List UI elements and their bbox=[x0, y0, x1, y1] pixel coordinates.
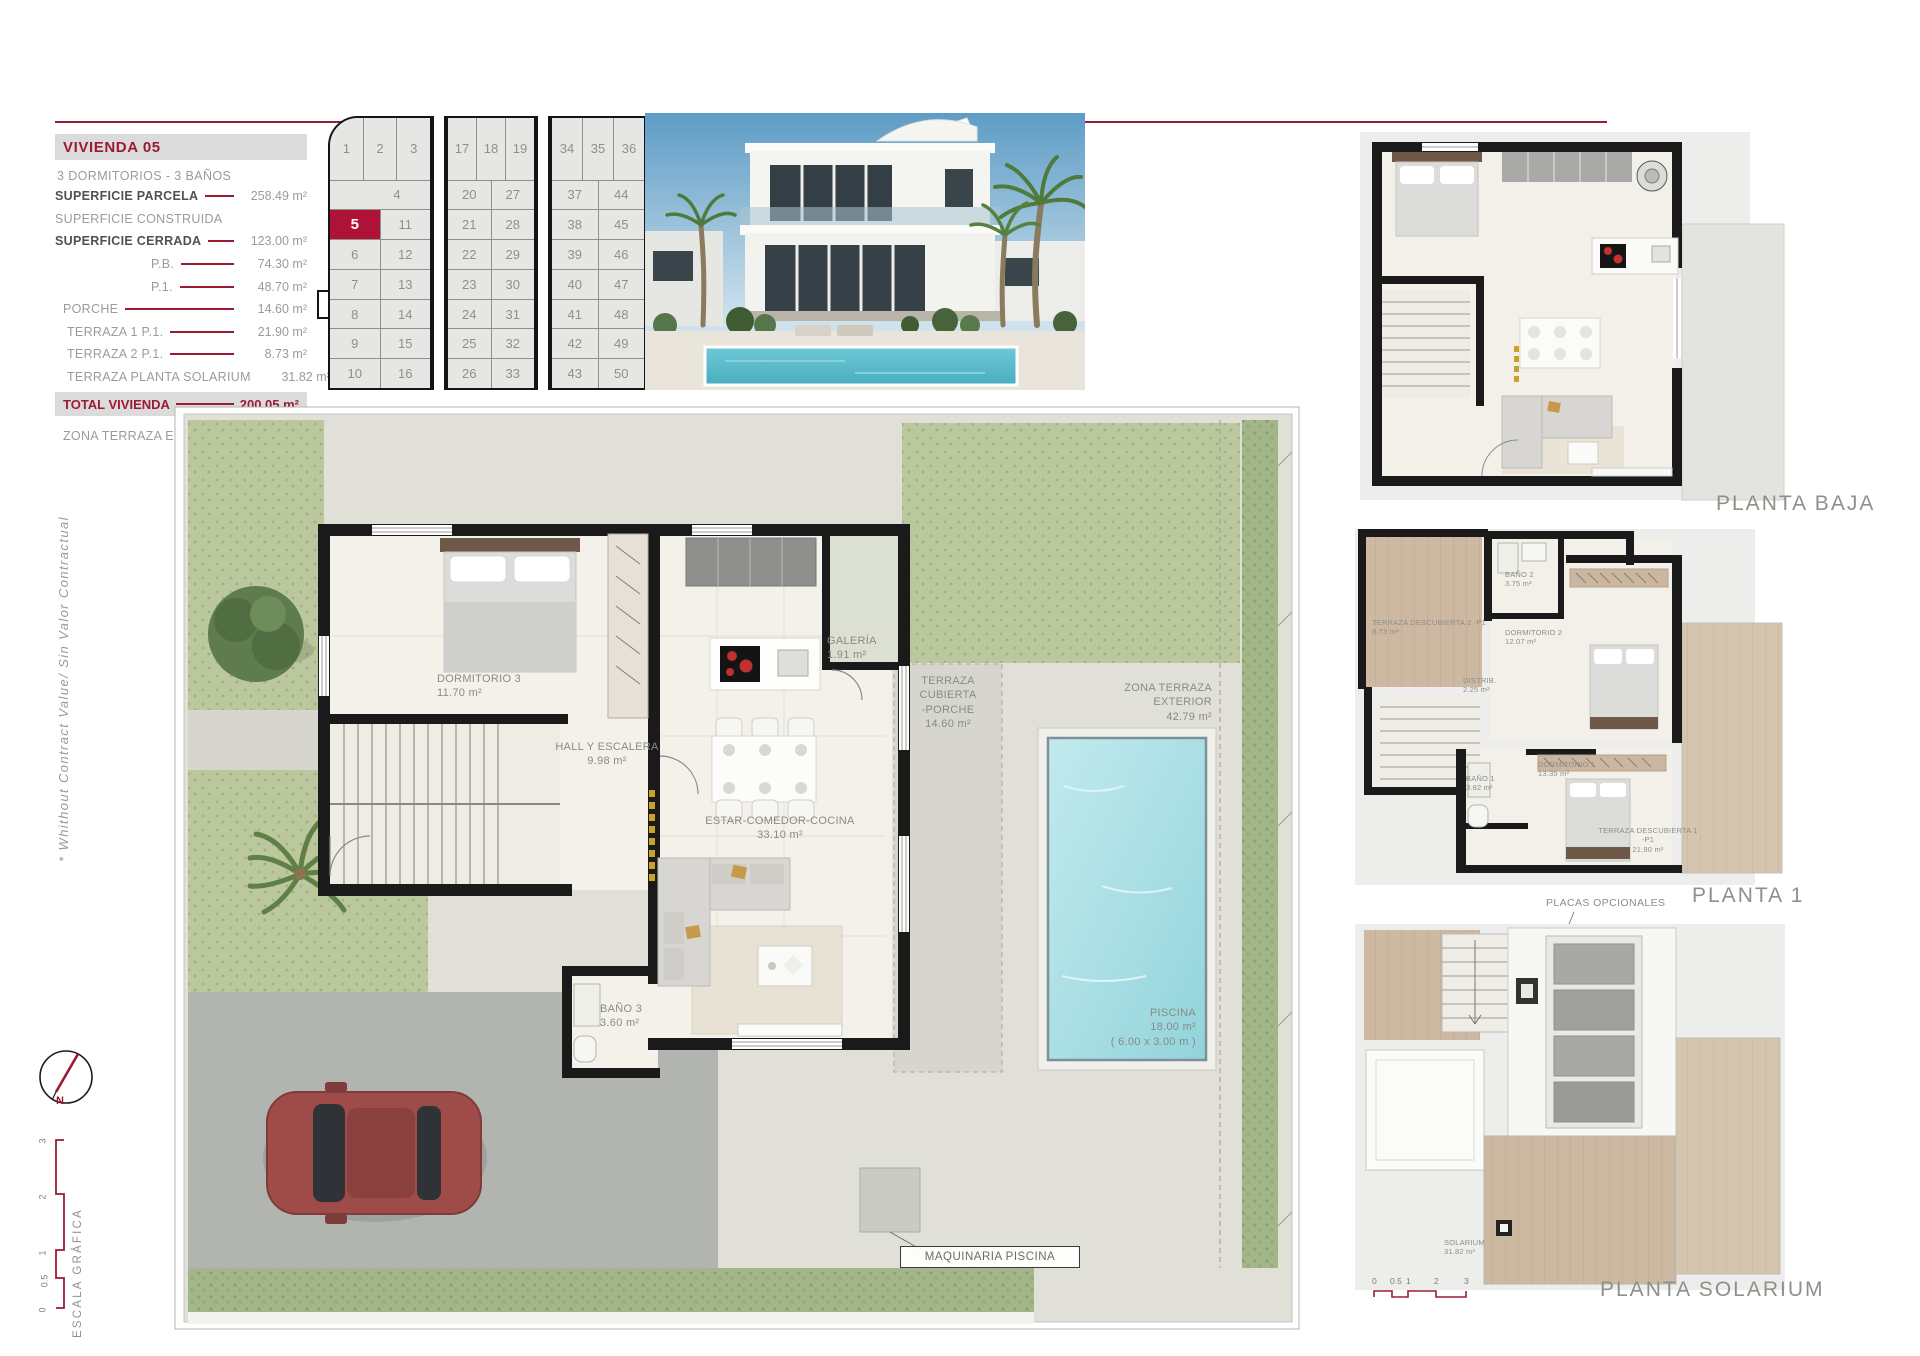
info-row: TERRAZA 2 P.1. 8.73 m² bbox=[55, 343, 307, 366]
plot-cell-32: 32 bbox=[492, 329, 535, 358]
row-value: 123.00 m² bbox=[241, 234, 307, 248]
plot-cell-26: 26 bbox=[448, 359, 492, 388]
p1-label-terraza2: TERRAZA DESCUBIERTA 2 -P1 8.73 m² bbox=[1372, 618, 1490, 637]
disclaimer-note: * Whithout Contract Value/ Sin Valor Con… bbox=[56, 516, 71, 862]
room-label-bano3: BAÑO 3 3.60 m² bbox=[600, 1002, 670, 1031]
leader-line bbox=[181, 263, 234, 265]
site-plan-grid: 1234511612713814915101617181920272128222… bbox=[328, 116, 646, 390]
plot-cell-49: 49 bbox=[599, 329, 645, 358]
plot-row: 2532 bbox=[448, 329, 534, 359]
plot-row: 612 bbox=[330, 240, 430, 270]
plot-cell-30: 30 bbox=[492, 270, 535, 299]
plot-cell-46: 46 bbox=[599, 240, 645, 269]
plot-cell-22: 22 bbox=[448, 240, 492, 269]
wardrobe bbox=[608, 534, 648, 718]
plot-row: 171819 bbox=[448, 118, 534, 181]
sink bbox=[778, 650, 808, 676]
p1-label-dormitorio1: DORMITORIO 1 13.35 m² bbox=[1538, 760, 1618, 779]
plot-cell-18: 18 bbox=[477, 118, 506, 180]
plot-cell-34: 34 bbox=[552, 118, 583, 180]
plot-cell-11: 11 bbox=[381, 210, 431, 239]
plot-cell-40: 40 bbox=[552, 270, 599, 299]
info-row: TERRAZA PLANTA SOLARIUM 31.82 m² bbox=[55, 366, 307, 389]
pool-equipment-pad bbox=[860, 1168, 920, 1232]
room-label-porche: TERRAZA CUBIERTA -PORCHE 14.60 m² bbox=[896, 674, 1000, 731]
escala-grafica-label: ESCALA GRÁFICA bbox=[72, 1208, 84, 1338]
hedge-right bbox=[1242, 420, 1278, 1268]
plot-row: 2027 bbox=[448, 181, 534, 211]
plot-cell-48: 48 bbox=[599, 300, 645, 329]
leader-line bbox=[170, 331, 234, 333]
plot-row: 2431 bbox=[448, 300, 534, 330]
plot-cell-10: 10 bbox=[330, 359, 381, 388]
planta-solarium-plan bbox=[1350, 920, 1800, 1298]
plot-row: 713 bbox=[330, 270, 430, 300]
row-label: P.B. bbox=[151, 257, 174, 271]
photo-pool bbox=[705, 347, 1017, 385]
plot-row: 511 bbox=[330, 210, 430, 240]
compass-north-label: N bbox=[56, 1095, 64, 1107]
side-path bbox=[188, 710, 324, 770]
info-row: PORCHE 14.60 m² bbox=[55, 298, 307, 321]
plot-strip: 1718192027212822292330243125322633 bbox=[446, 116, 536, 390]
washbasin bbox=[574, 984, 600, 1026]
plot-row: 4047 bbox=[552, 270, 644, 300]
row-value: 74.30 m² bbox=[241, 257, 307, 271]
sun-lounger bbox=[795, 325, 831, 336]
planta-baja-title: PLANTA BAJA bbox=[1716, 492, 1875, 516]
planta-1-plan bbox=[1350, 527, 1800, 889]
plot-row: 123 bbox=[330, 118, 430, 181]
plot-cell-19: 19 bbox=[506, 118, 534, 180]
planta-solarium-title: PLANTA SOLARIUM bbox=[1600, 1278, 1825, 1302]
solarium-scale-bar: 0 0.5 1 2 3 bbox=[1372, 1276, 1482, 1300]
plot-cell-3: 3 bbox=[397, 118, 430, 180]
plot-cell-36: 36 bbox=[614, 118, 644, 180]
row-value: 31.82 m² bbox=[265, 370, 331, 384]
plot-row: 2330 bbox=[448, 270, 534, 300]
plot-cell-50: 50 bbox=[599, 359, 645, 388]
plot-cell-28: 28 bbox=[492, 210, 535, 239]
plot-cell-4: 4 bbox=[330, 181, 430, 210]
plot-cell-43: 43 bbox=[552, 359, 599, 388]
plot-row: 3946 bbox=[552, 240, 644, 270]
plot-cell-37: 37 bbox=[552, 181, 599, 210]
total-label: TOTAL VIVIENDA bbox=[63, 397, 170, 412]
plot-cell-44: 44 bbox=[599, 181, 645, 210]
p1-label-distrib: DISTRIB. 2.25 m² bbox=[1463, 676, 1519, 695]
plot-cell-27: 27 bbox=[492, 181, 535, 210]
plot-cell-5: 5 bbox=[330, 210, 381, 239]
plot-row: 814 bbox=[330, 300, 430, 330]
plot-cell-33: 33 bbox=[492, 359, 535, 388]
plot-cell-14: 14 bbox=[381, 300, 431, 329]
row-label: P.1. bbox=[151, 280, 173, 294]
p1-label-terraza1: TERRAZA DESCUBIERTA 1 -P1 21.90 m² bbox=[1596, 826, 1700, 854]
plot-cell-16: 16 bbox=[381, 359, 431, 388]
page-title: VIVIENDA 05 bbox=[55, 134, 307, 160]
row-value: 8.73 m² bbox=[241, 347, 307, 361]
plot-cell-12: 12 bbox=[381, 240, 431, 269]
row-value: 21.90 m² bbox=[241, 325, 307, 339]
info-row: TERRAZA 1 P.1. 21.90 m² bbox=[55, 321, 307, 344]
room-label-piscina: PISCINA 18.00 m² ( 6.00 x 3.00 m ) bbox=[1084, 1006, 1196, 1049]
toilet bbox=[574, 1036, 596, 1062]
info-row: SUPERFICIE CONSTRUIDA bbox=[55, 208, 307, 231]
row-value: 48.70 m² bbox=[241, 280, 307, 294]
room-label-dormitorio3: DORMITORIO 3 11.70 m² bbox=[437, 672, 567, 701]
room-label-hall: HALL Y ESCALERA 9.98 m² bbox=[532, 740, 682, 769]
leader-line bbox=[180, 286, 234, 288]
plot-row: 4350 bbox=[552, 359, 644, 388]
sun-lounger bbox=[837, 325, 873, 336]
room-label-galeria: GALERÍA 1.91 m² bbox=[827, 634, 903, 663]
dwelling-subtitle: 3 DORMITORIOS - 3 BAÑOS bbox=[57, 169, 307, 183]
plot-cell-15: 15 bbox=[381, 329, 431, 358]
info-panel: VIVIENDA 05 3 DORMITORIOS - 3 BAÑOS SUPE… bbox=[55, 134, 307, 447]
p1-label-bano2: BAÑO 2 3.75 m² bbox=[1505, 570, 1565, 589]
plot-row: 2633 bbox=[448, 359, 534, 388]
plot-cell-29: 29 bbox=[492, 240, 535, 269]
plot-row: 4148 bbox=[552, 300, 644, 330]
main-floor-plan: DORMITORIO 3 11.70 m² GALERÍA 1.91 m² HA… bbox=[172, 406, 1302, 1331]
row-value: 14.60 m² bbox=[241, 302, 307, 316]
compass: N bbox=[36, 1044, 98, 1112]
villa-building bbox=[735, 118, 1005, 321]
plot-strip: 3435363744384539464047414842494350 bbox=[550, 116, 646, 390]
row-label: TERRAZA PLANTA SOLARIUM bbox=[67, 370, 251, 384]
plot-row: 3744 bbox=[552, 181, 644, 211]
plot-row: 3845 bbox=[552, 210, 644, 240]
info-row: SUPERFICIE CERRADA 123.00 m² bbox=[55, 230, 307, 253]
info-row: SUPERFICIE PARCELA 258.49 m² bbox=[55, 185, 307, 208]
room-label-zona-terraza: ZONA TERRAZA EXTERIOR 42.79 m² bbox=[1072, 681, 1212, 724]
tv-bench bbox=[738, 1024, 842, 1036]
hedge-bottom bbox=[188, 1268, 1034, 1312]
plot-row: 4 bbox=[330, 181, 430, 211]
leader-line bbox=[125, 308, 234, 310]
plot-cell-38: 38 bbox=[552, 210, 599, 239]
brochure-page: VIVIENDA 05 3 DORMITORIOS - 3 BAÑOS SUPE… bbox=[0, 0, 1920, 1356]
plot-cell-9: 9 bbox=[330, 329, 381, 358]
plot-cell-2: 2 bbox=[364, 118, 398, 180]
plot-cell-20: 20 bbox=[448, 181, 492, 210]
plot-strip: 12345116127138149151016 bbox=[328, 116, 432, 390]
plot-cell-21: 21 bbox=[448, 210, 492, 239]
plot-cell-31: 31 bbox=[492, 300, 535, 329]
plot-cell-6: 6 bbox=[330, 240, 381, 269]
plot-row: 915 bbox=[330, 329, 430, 359]
plot-row: 2229 bbox=[448, 240, 534, 270]
plot-row: 2128 bbox=[448, 210, 534, 240]
row-label: TERRAZA 2 P.1. bbox=[67, 347, 163, 361]
villa-photo bbox=[645, 113, 1085, 390]
kitchen-counter bbox=[686, 538, 816, 586]
dining-set bbox=[712, 718, 816, 820]
plot-cell-13: 13 bbox=[381, 270, 431, 299]
plot-cell-47: 47 bbox=[599, 270, 645, 299]
plot-row: 4249 bbox=[552, 329, 644, 359]
plot-cell-25: 25 bbox=[448, 329, 492, 358]
bed-headboard bbox=[440, 538, 580, 552]
plot-cell-39: 39 bbox=[552, 240, 599, 269]
p1-label-bano1: BAÑO 1 3.82 m² bbox=[1466, 774, 1522, 793]
car bbox=[263, 1082, 487, 1224]
row-label: SUPERFICIE PARCELA bbox=[55, 189, 198, 203]
planta-baja-plan bbox=[1352, 128, 1792, 508]
info-row: P.B. 74.30 m² bbox=[55, 253, 307, 276]
room-label-estar: ESTAR-COMEDOR-COCINA 33.10 m² bbox=[700, 814, 860, 843]
plot-cell-8: 8 bbox=[330, 300, 381, 329]
row-label: PORCHE bbox=[63, 302, 118, 316]
planta-1-title: PLANTA 1 bbox=[1692, 884, 1805, 908]
plot-cell-41: 41 bbox=[552, 300, 599, 329]
info-row: P.1. 48.70 m² bbox=[55, 275, 307, 298]
plot-cell-24: 24 bbox=[448, 300, 492, 329]
street bbox=[536, 116, 550, 390]
plot-cell-17: 17 bbox=[448, 118, 477, 180]
plot-cell-7: 7 bbox=[330, 270, 381, 299]
plot-row: 343536 bbox=[552, 118, 644, 181]
plot-cell-1: 1 bbox=[330, 118, 364, 180]
plot-cell-23: 23 bbox=[448, 270, 492, 299]
plot-cell-42: 42 bbox=[552, 329, 599, 358]
plot-cell-45: 45 bbox=[599, 210, 645, 239]
leader-line bbox=[208, 240, 234, 242]
garden-upper-right bbox=[902, 423, 1240, 663]
street bbox=[432, 116, 446, 390]
row-label: SUPERFICIE CERRADA bbox=[55, 234, 201, 248]
scale-bar-vertical bbox=[52, 1138, 72, 1323]
maquinaria-label: MAQUINARIA PISCINA bbox=[900, 1246, 1080, 1268]
leader-line bbox=[205, 195, 234, 197]
plot-cell-35: 35 bbox=[583, 118, 614, 180]
p1-label-dormitorio2: DORMITORIO 2 12.07 m² bbox=[1505, 628, 1585, 647]
row-value: 258.49 m² bbox=[241, 189, 307, 203]
row-label: SUPERFICIE CONSTRUIDA bbox=[55, 212, 222, 226]
solarium-label: SOLARIUM 31.82 m² bbox=[1444, 1238, 1504, 1257]
leader-line bbox=[170, 353, 234, 355]
row-label: TERRAZA 1 P.1. bbox=[67, 325, 163, 339]
plot-row: 1016 bbox=[330, 359, 430, 388]
